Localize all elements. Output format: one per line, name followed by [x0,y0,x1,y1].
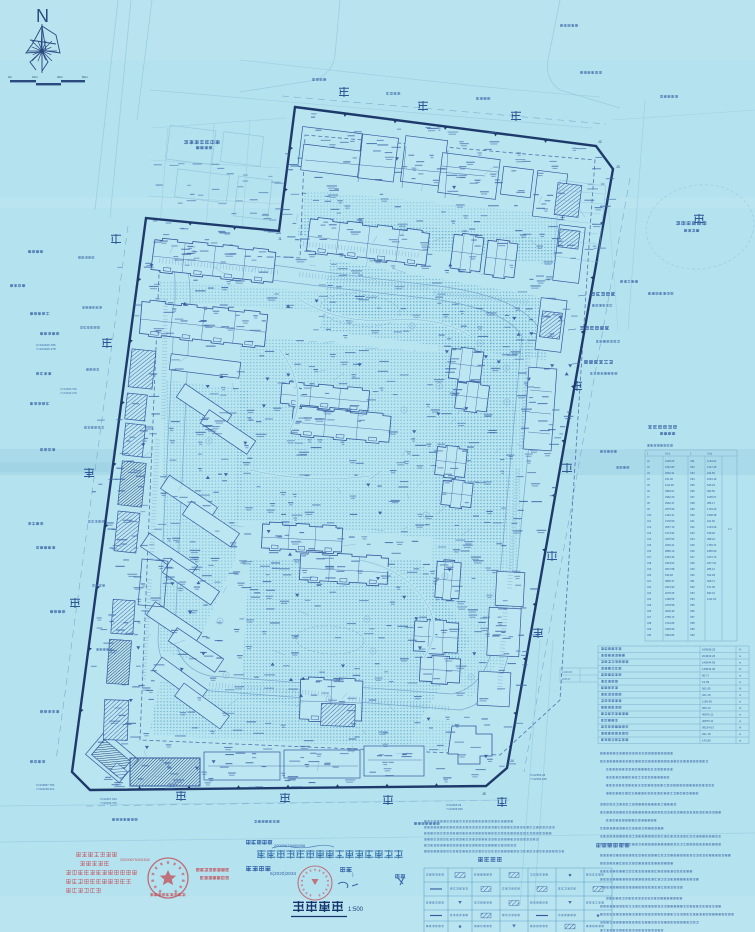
svg-text:Y=23346.278: Y=23346.278 [60,391,77,395]
svg-text:J12: J12 [647,525,652,529]
svg-text:X34: X34 [690,477,695,481]
svg-text:2540.31: 2540.31 [665,471,675,475]
svg-text:J26: J26 [647,609,652,613]
svg-text:1274.94: 1274.94 [665,531,675,535]
svg-text:X59: X59 [690,627,695,631]
svg-text:3362.20: 3362.20 [665,495,675,499]
svg-text:20000679405308: 20000679405308 [120,858,150,862]
svg-text:Y=223246.278: Y=223246.278 [36,347,56,351]
svg-text:J28: J28 [647,621,652,625]
svg-text:145644.00: 145644.00 [702,667,716,671]
svg-text:m: m [739,714,741,717]
svg-text:1621.73: 1621.73 [707,555,717,559]
svg-text:145644.95: 145644.95 [702,661,716,665]
svg-text:J29: J29 [647,627,652,631]
svg-text:993.50: 993.50 [707,489,715,493]
svg-text:J18: J18 [647,561,652,565]
svg-text:1769.74: 1769.74 [707,543,717,547]
svg-text:321.15: 321.15 [702,693,711,697]
svg-text:1877.61: 1877.61 [707,561,717,565]
svg-text:J1: J1 [278,237,282,241]
svg-text:998.22: 998.22 [707,537,715,541]
svg-text:99134.63: 99134.63 [702,726,714,730]
svg-text:1111.48: 1111.48 [665,483,674,487]
svg-text:X43: X43 [690,531,695,535]
svg-text:3475.56: 3475.56 [665,537,675,541]
svg-text:2378.58: 2378.58 [665,603,675,607]
svg-text:2903.41: 2903.41 [665,543,675,547]
svg-text:m: m [739,740,741,743]
svg-text:J4: J4 [510,759,514,763]
svg-text:X41: X41 [690,519,695,523]
svg-text:Y(m): Y(m) [707,453,712,456]
svg-text:3057.10: 3057.10 [665,525,675,529]
svg-text:X39: X39 [690,507,695,511]
svg-text:3865.37: 3865.37 [665,579,675,583]
svg-text:m: m [739,720,741,723]
svg-text:2140.41: 2140.41 [665,513,675,517]
svg-text:158.92: 158.92 [707,531,715,535]
svg-text:X60: X60 [690,633,695,637]
svg-text:J2: J2 [598,140,602,144]
svg-text:J5: J5 [482,792,486,796]
svg-text:1247.45: 1247.45 [707,465,717,469]
svg-text:X31: X31 [690,459,695,463]
svg-text:1542.83: 1542.83 [665,465,675,469]
svg-text:N: N [36,6,49,26]
svg-text:1640.36: 1640.36 [665,555,675,559]
svg-text:X40: X40 [690,513,695,517]
svg-text:m: m [739,662,741,665]
svg-text:2078.25: 2078.25 [665,591,675,595]
svg-text:89.71: 89.71 [702,674,709,678]
svg-text:1106.95: 1106.95 [702,700,712,704]
svg-text:1468.55: 1468.55 [665,597,675,601]
svg-text:X50: X50 [690,573,695,577]
svg-text:386.17: 386.17 [707,501,715,505]
svg-text:J10: J10 [647,513,652,517]
svg-text:2759.73: 2759.73 [665,615,675,619]
svg-text:40876.11: 40876.11 [702,713,714,717]
svg-text:Y=22336.745: Y=22336.745 [100,801,117,805]
svg-text:1508.38: 1508.38 [707,513,717,517]
svg-text:3983.01: 3983.01 [665,489,675,493]
svg-text:X37: X37 [690,495,695,499]
svg-text:X46: X46 [690,549,695,553]
svg-text:X52: X52 [690,585,695,589]
svg-text:40876.11: 40876.11 [702,719,714,723]
svg-text:J15: J15 [647,543,652,547]
svg-text:545.23: 545.23 [707,483,715,487]
svg-text:X44: X44 [690,537,695,541]
svg-text:169068.25: 169068.25 [702,648,716,652]
svg-text:3722.89: 3722.89 [665,621,675,625]
svg-text:224.50: 224.50 [707,471,715,475]
svg-text:833.15: 833.15 [707,591,715,595]
svg-text:3439.96: 3439.96 [665,627,675,631]
svg-text:X56: X56 [690,609,695,613]
svg-text:285.16: 285.16 [707,567,715,571]
svg-text:1005.07: 1005.07 [707,495,717,499]
svg-text:1223.09: 1223.09 [707,525,717,529]
svg-text:X49: X49 [690,567,695,571]
svg-text:50m: 50m [82,75,88,79]
svg-text:X51: X51 [690,579,695,583]
svg-text:1211.64: 1211.64 [707,597,717,601]
svg-text:m: m [739,655,741,658]
svg-text:X32: X32 [690,465,695,469]
svg-text:4035.47: 4035.47 [562,678,571,681]
svg-text:2543.93: 2543.93 [665,585,675,589]
svg-text:X57: X57 [690,615,695,619]
svg-text:0m: 0m [8,75,13,79]
svg-text:X47: X47 [690,555,695,559]
svg-text:X33: X33 [690,471,695,475]
svg-text:J22: J22 [647,585,652,589]
svg-text:10m: 10m [32,75,38,79]
svg-text:3527.58: 3527.58 [665,567,675,571]
svg-text:151.36: 151.36 [665,477,673,481]
svg-text:Y=223218.412: Y=223218.412 [36,787,55,791]
svg-text:1850.09: 1850.09 [707,549,717,553]
svg-text:671.95: 671.95 [707,585,715,589]
svg-text:1691.19: 1691.19 [707,477,717,481]
svg-text:1749.29: 1749.29 [707,507,717,511]
svg-text:204633.26: 204633.26 [702,654,716,658]
svg-text:Y=22366.945: Y=22366.945 [446,807,463,811]
svg-text:J19: J19 [647,567,652,571]
svg-text:2575.96: 2575.96 [665,507,675,511]
svg-text:1028.06: 1028.06 [665,459,675,463]
svg-text:143.80: 143.80 [702,739,711,743]
svg-text:1834.02: 1834.02 [665,561,675,565]
svg-text:X35: X35 [690,483,695,487]
svg-text:J3: J3 [616,165,620,169]
svg-text:X(m): X(m) [665,453,670,456]
svg-text:1134.04: 1134.04 [707,459,717,463]
svg-text:512.28: 512.28 [707,573,715,577]
svg-text:J16: J16 [647,549,652,553]
svg-text:928.71: 928.71 [707,579,715,583]
svg-text:m: m [739,701,741,704]
svg-text:14140.03: 14140.03 [562,671,573,674]
svg-text:J21: J21 [647,579,652,583]
svg-text:Y=22366.945: Y=22366.945 [530,777,547,781]
svg-text:X54: X54 [690,597,695,601]
svg-text:m: m [739,694,741,697]
svg-text:X42: X42 [690,525,695,529]
svg-text:561.65: 561.65 [702,687,711,691]
svg-text:X53: X53 [690,591,695,595]
svg-text:m: m [739,675,741,678]
svg-text:J14: J14 [647,537,652,541]
svg-text:1:500: 1:500 [348,907,364,913]
svg-text:X45: X45 [690,543,695,547]
svg-text:256.13: 256.13 [702,706,711,710]
svg-text:m: m [739,681,741,684]
svg-text:J27: J27 [647,615,652,619]
svg-text:1:2: 1:2 [728,527,732,531]
svg-text:J30: J30 [647,633,652,637]
svg-text:20000679405308: 20000679405308 [274,843,306,848]
svg-text:J20: J20 [647,573,652,577]
svg-text:3964.86: 3964.86 [665,633,675,637]
svg-text:2718.50: 2718.50 [665,519,675,523]
svg-text:X58: X58 [690,621,695,625]
svg-text:J24: J24 [647,597,652,601]
svg-text:20m: 20m [57,75,63,79]
svg-text:J17: J17 [647,555,652,559]
svg-text:J25: J25 [647,603,652,607]
svg-text:291.18: 291.18 [702,732,711,736]
svg-text:m: m [739,733,741,736]
svg-text:3626.39: 3626.39 [665,609,675,613]
svg-text:2885.10: 2885.10 [665,549,675,553]
svg-text:X36: X36 [690,489,695,493]
svg-text:5(2020)2034: 5(2020)2034 [270,871,296,876]
svg-text:2592.37: 2592.37 [665,501,675,505]
svg-text:X38: X38 [690,501,695,505]
svg-text:221.66: 221.66 [707,519,715,523]
svg-text:630.28: 630.28 [665,573,673,577]
svg-text:J13: J13 [647,531,652,535]
svg-text:X48: X48 [690,561,695,565]
svg-text:X55: X55 [690,603,695,607]
svg-text:J23: J23 [647,591,652,595]
svg-text:J11: J11 [647,519,652,523]
svg-text:13.09: 13.09 [702,680,709,684]
